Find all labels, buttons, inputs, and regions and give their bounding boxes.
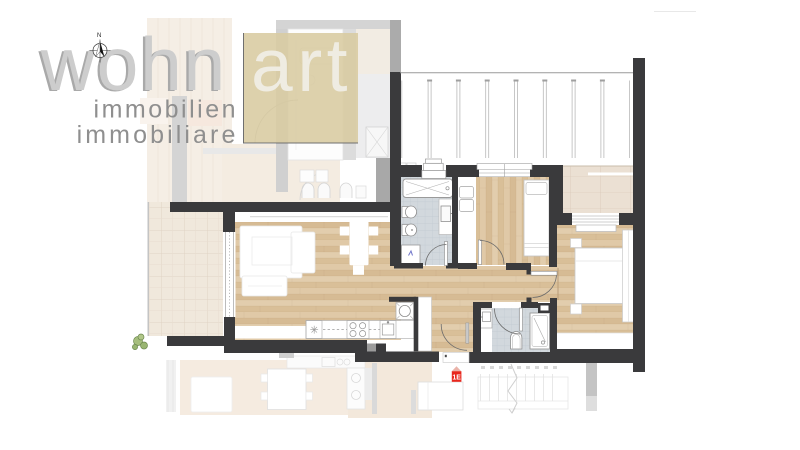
svg-text:art: art — [251, 23, 352, 107]
svg-text:immobilien: immobilien — [94, 96, 238, 124]
svg-text:N: N — [97, 33, 101, 39]
svg-text:immobiliare: immobiliare — [77, 121, 239, 149]
svg-text:1E: 1E — [452, 374, 461, 381]
svg-text:wohn: wohn — [40, 22, 227, 106]
